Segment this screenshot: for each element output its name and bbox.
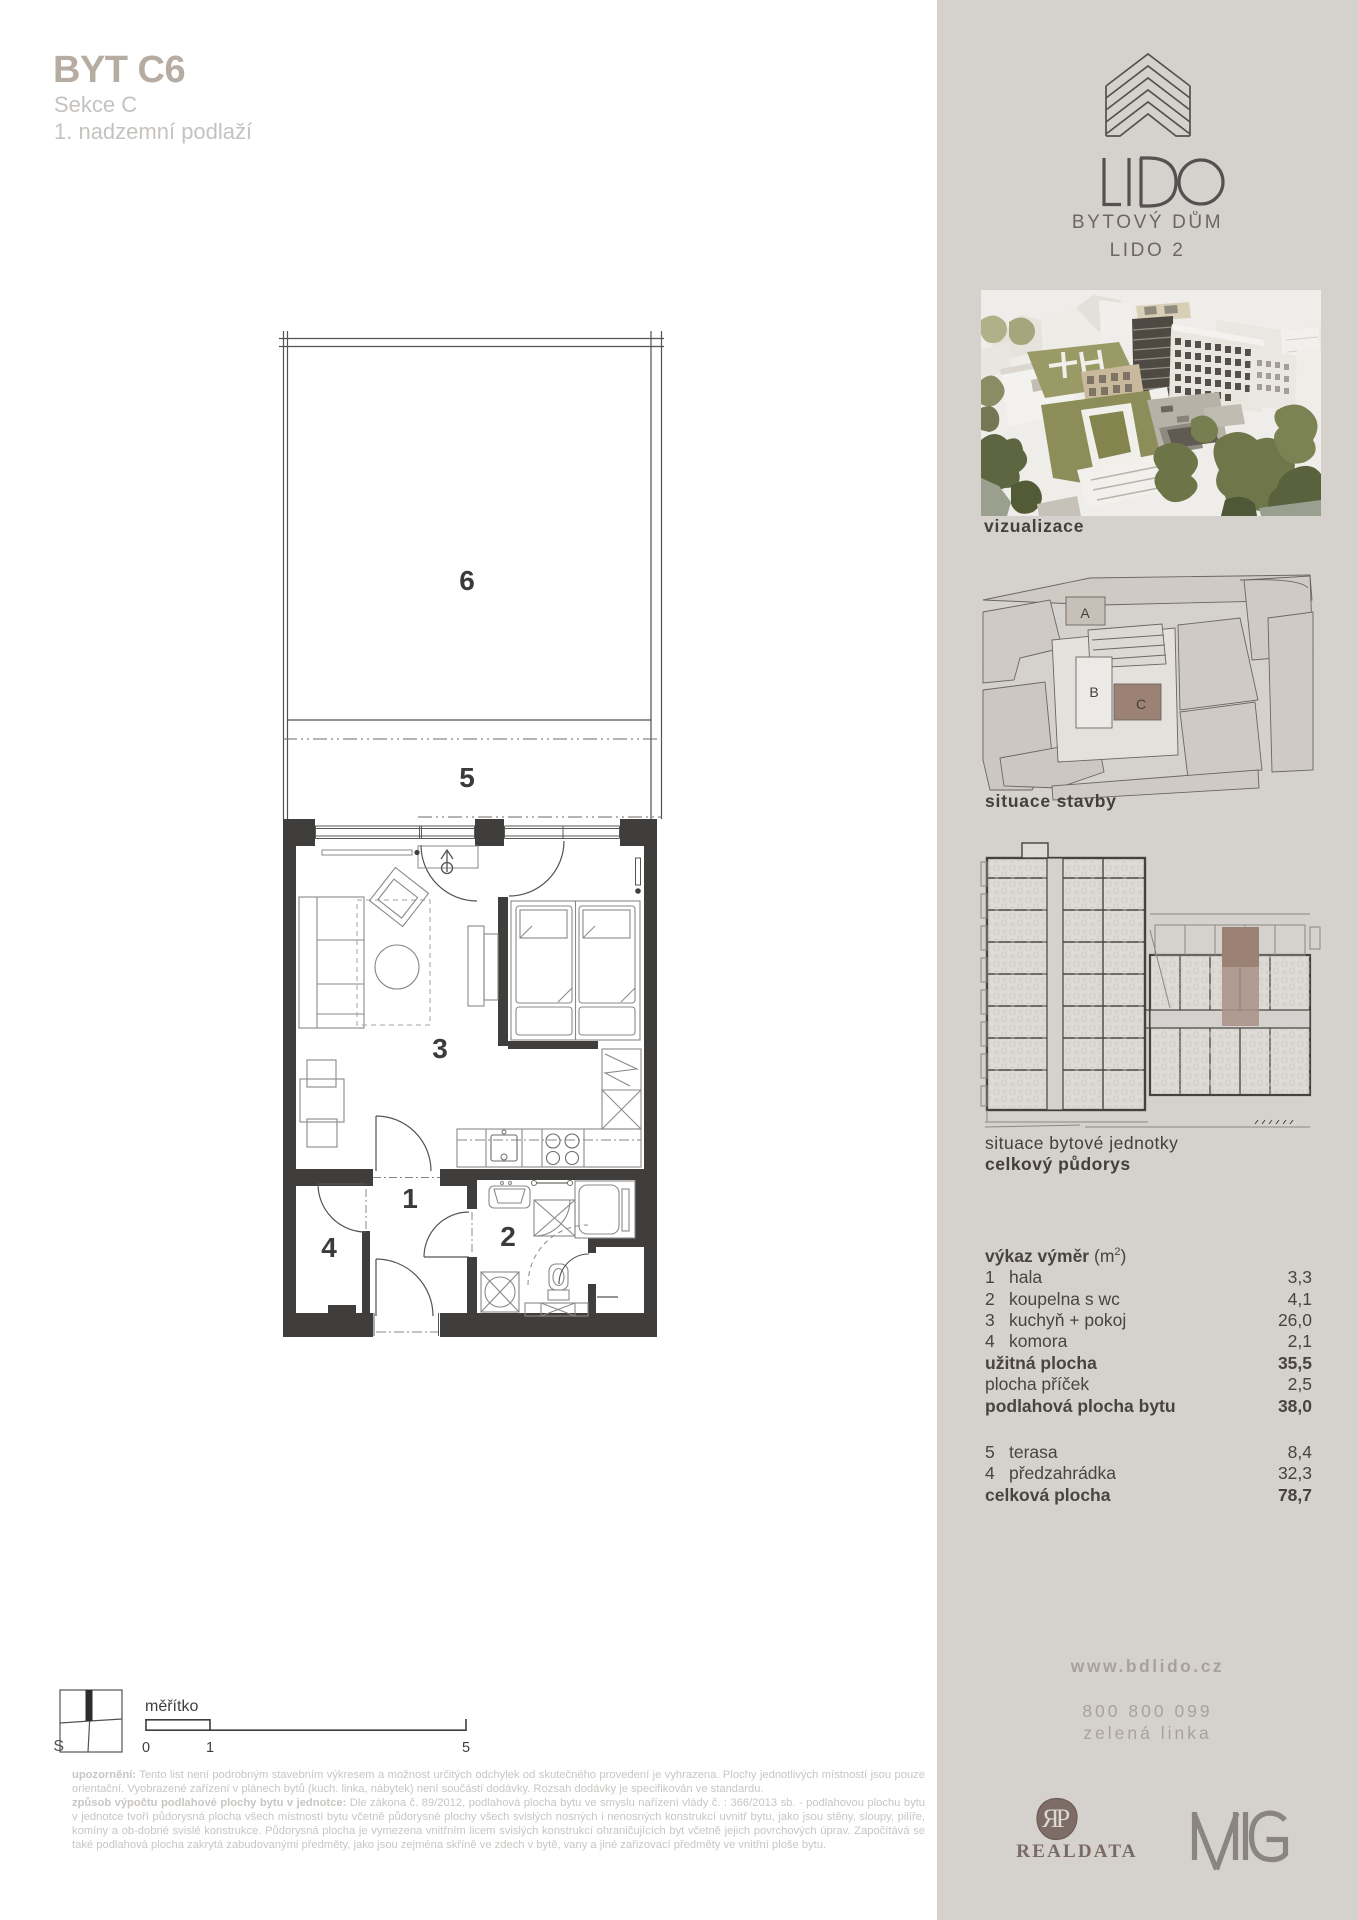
svg-text:0: 0 [142, 1740, 150, 1756]
svg-text:S: S [53, 1738, 64, 1755]
svg-text:6: 6 [459, 565, 475, 596]
svg-text:A: A [1080, 605, 1090, 621]
svg-text:5: 5 [462, 1740, 470, 1756]
svg-text:1: 1 [206, 1740, 214, 1756]
svg-text:3: 3 [432, 1033, 448, 1064]
svg-text:B: B [1089, 684, 1098, 700]
svg-text:C: C [1136, 696, 1146, 712]
svg-text:1: 1 [402, 1183, 418, 1214]
svg-text:5: 5 [459, 762, 475, 793]
svg-text:P: P [1056, 1804, 1070, 1833]
svg-text:měřítko: měřítko [145, 1698, 198, 1715]
svg-text:4: 4 [321, 1232, 337, 1263]
svg-text:2: 2 [500, 1221, 516, 1252]
